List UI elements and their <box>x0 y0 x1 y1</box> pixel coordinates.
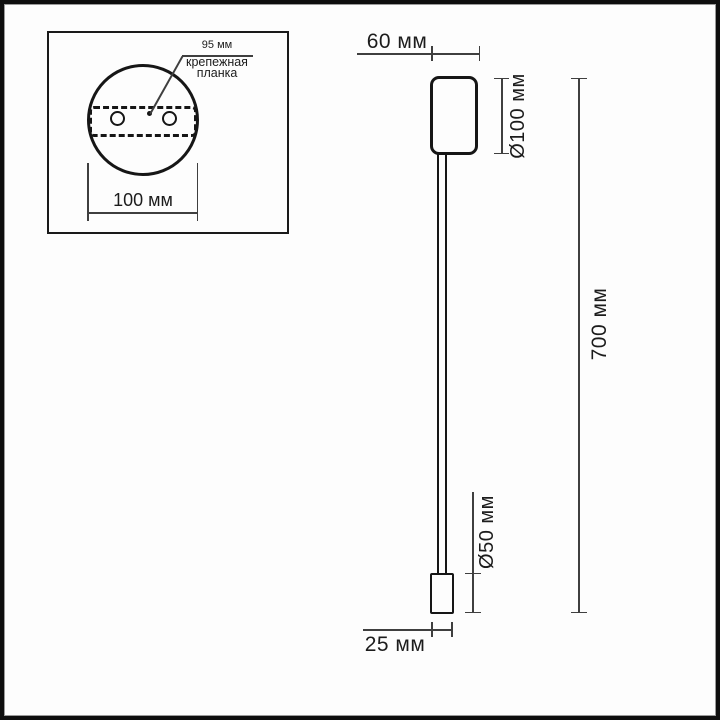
dimension-line-100 <box>88 212 198 214</box>
dim-body-diameter-label: Ø100 мм <box>507 61 531 171</box>
dimension-line-25 <box>363 629 453 631</box>
dimension-tick <box>465 612 481 614</box>
dim-total-height-label: 700 мм <box>588 269 614 379</box>
dimension-tick <box>479 46 481 61</box>
dim-bottom-width-label: 25 мм <box>353 633 437 657</box>
dimension-line-d50 <box>472 492 474 613</box>
lamp-body <box>430 76 478 155</box>
dim-top-width-label: 60 мм <box>355 30 439 54</box>
mounting-plate-label-line2: планка <box>176 68 258 79</box>
dimension-tick <box>451 622 453 637</box>
dim-base-width-label: 100 мм <box>93 190 193 211</box>
dimension-line-d100 <box>501 78 503 154</box>
technical-drawing-canvas: 95 мм крепежная планка 100 мм 60 мм Ø100… <box>0 0 720 720</box>
dimension-line-700 <box>578 78 580 613</box>
mounting-hole-right <box>162 111 177 126</box>
mounting-hole-left <box>110 111 125 126</box>
mounting-plate-dashed-outline <box>89 106 197 137</box>
dimension-tick <box>571 78 587 80</box>
lamp-stem <box>437 153 447 575</box>
lamp-bottom-cap <box>430 573 454 614</box>
dim-tube-diameter-label: Ø50 мм <box>476 482 500 582</box>
dimension-tick <box>571 612 587 614</box>
mounting-plate-label: крепежная планка <box>176 57 258 79</box>
dim-hole-spacing-label: 95 мм <box>180 39 254 51</box>
